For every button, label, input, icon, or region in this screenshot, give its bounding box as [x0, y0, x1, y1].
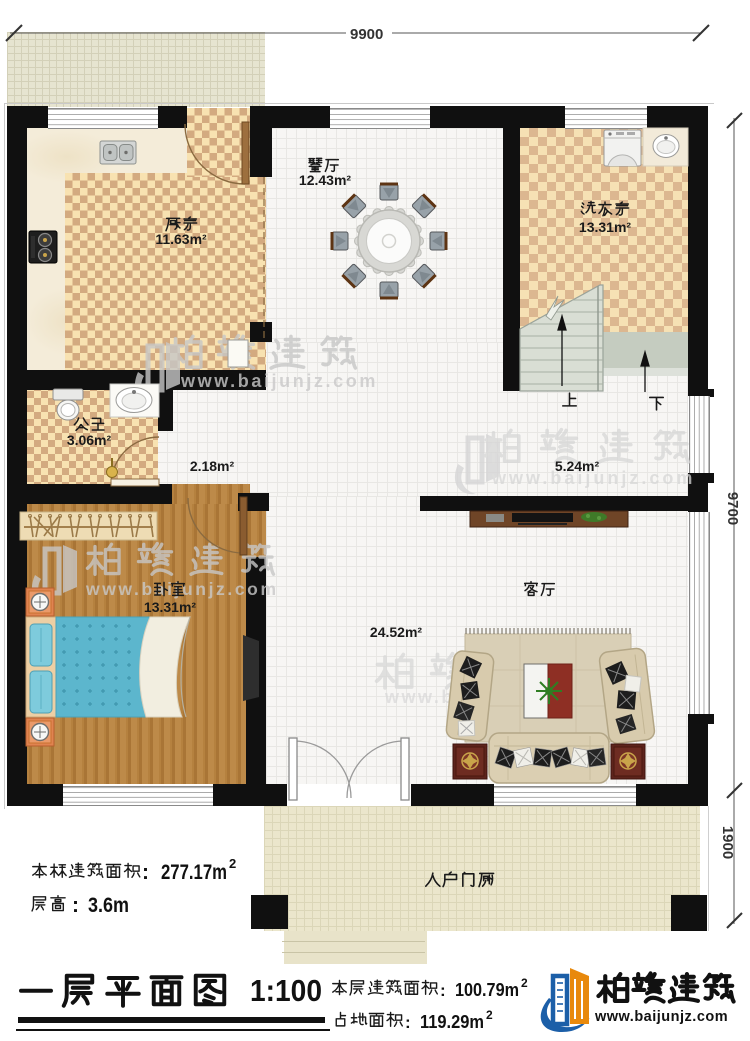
- svg-text::: :: [142, 861, 149, 884]
- svg-text:2: 2: [521, 976, 528, 990]
- svg-text:www.baijunjz.com: www.baijunjz.com: [594, 1009, 728, 1025]
- svg-text::: :: [405, 1013, 411, 1032]
- svg-text:277.17m: 277.17m: [161, 861, 227, 884]
- svg-text::: :: [440, 981, 446, 1000]
- svg-text:2: 2: [229, 856, 236, 871]
- svg-text:3.6m: 3.6m: [88, 894, 129, 917]
- svg-text:100.79m: 100.79m: [455, 980, 519, 1000]
- svg-text:119.29m: 119.29m: [420, 1012, 484, 1032]
- svg-text:www.baijunjz.com: www.baijunjz.com: [180, 371, 378, 391]
- svg-text:1:100: 1:100: [250, 973, 322, 1008]
- svg-text::: :: [72, 894, 79, 917]
- svg-text:2: 2: [486, 1008, 493, 1022]
